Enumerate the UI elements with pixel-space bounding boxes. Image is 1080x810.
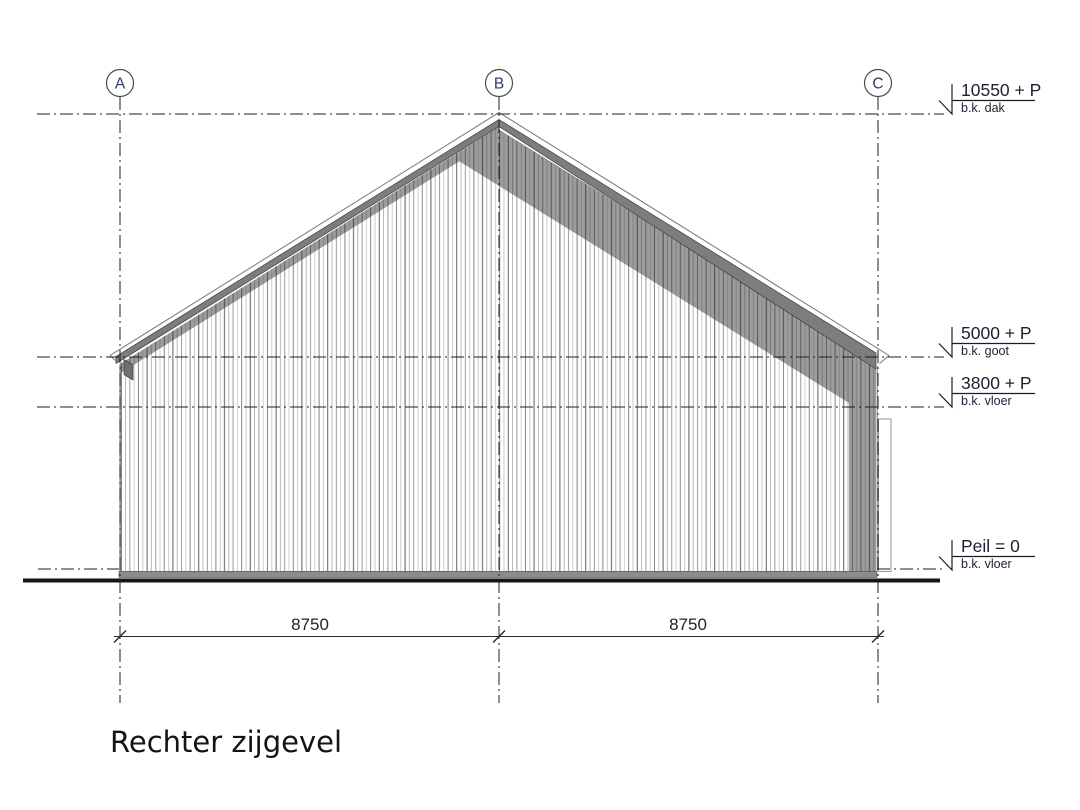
wall-cladding-hatch	[120, 130, 876, 572]
level-markers: 10550 + P b.k. dak 5000 + P b.k. goot 38…	[939, 80, 1041, 571]
level-sublabel: b.k. goot	[961, 344, 1009, 358]
level-sublabel: b.k. dak	[961, 101, 1006, 115]
plinth-band	[119, 572, 877, 578]
level-sublabel: b.k. vloer	[961, 557, 1012, 571]
level-value: 10550 + P	[961, 80, 1041, 100]
level-value: 3800 + P	[961, 373, 1032, 393]
level-marker-goot: 5000 + P b.k. goot	[939, 323, 1035, 358]
level-marker-dak: 10550 + P b.k. dak	[939, 80, 1041, 115]
grid-bubble-c: C	[865, 70, 892, 97]
level-sublabel: b.k. vloer	[961, 394, 1012, 408]
level-triangle-icon	[939, 557, 952, 571]
elevation-canvas: A B C 10550 + P b.k. dak 5000 + P b.k. g…	[0, 0, 1080, 810]
grid-bubble-a: A	[107, 70, 134, 97]
level-marker-vloer: 3800 + P b.k. vloer	[939, 373, 1035, 408]
grid-label-c: C	[872, 76, 883, 93]
level-triangle-icon	[939, 394, 952, 408]
downspout	[879, 419, 892, 572]
level-value: Peil = 0	[961, 536, 1020, 556]
dimension-label-right: 8750	[669, 615, 707, 634]
roof-outline-right-end	[880, 356, 890, 364]
grid-bubble-b: B	[486, 70, 513, 97]
drawing-title: Rechter zijgevel	[110, 725, 342, 759]
grid-label-b: B	[494, 76, 504, 93]
grid-bubbles: A B C	[107, 70, 892, 97]
level-value: 5000 + P	[961, 323, 1032, 343]
building-elevation	[110, 113, 891, 578]
grid-label-a: A	[115, 76, 126, 93]
level-triangle-icon	[939, 344, 952, 358]
dimension-label-left: 8750	[291, 615, 329, 634]
level-triangle-icon	[939, 101, 952, 115]
level-marker-peil: Peil = 0 b.k. vloer	[939, 536, 1035, 571]
